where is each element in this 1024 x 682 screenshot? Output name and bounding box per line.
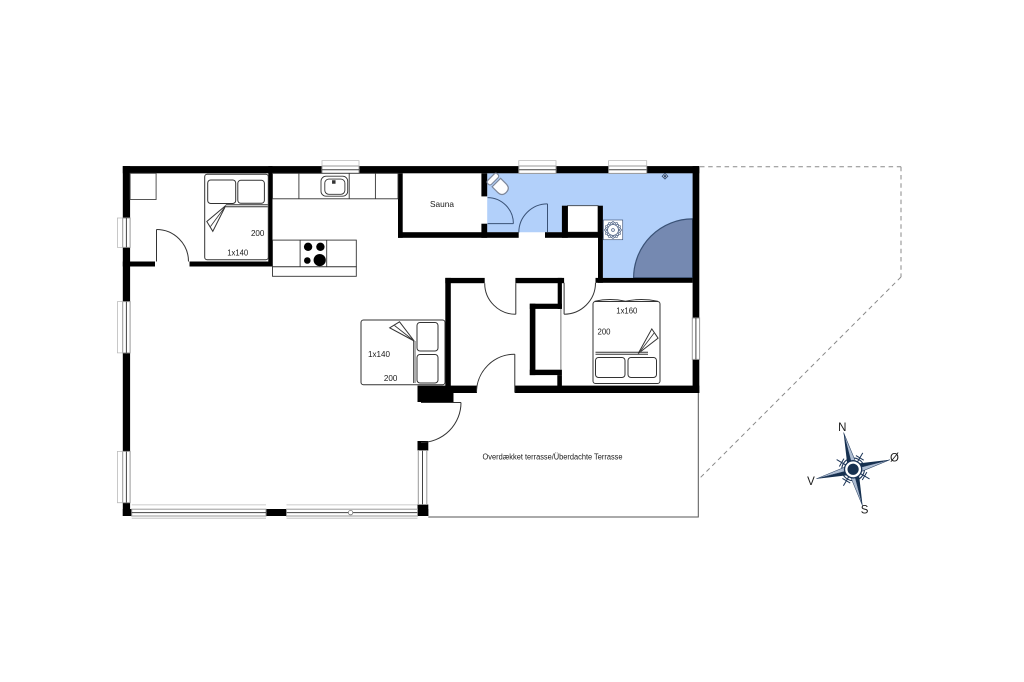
svg-text:S: S	[861, 504, 869, 516]
svg-text:1x160: 1x160	[616, 306, 637, 316]
svg-text:1x140: 1x140	[368, 349, 390, 359]
svg-text:Overdækket terrasse/Überdachte: Overdækket terrasse/Überdachte Terrasse	[483, 453, 624, 462]
svg-text:Sauna: Sauna	[430, 199, 454, 209]
svg-text:Ø: Ø	[890, 453, 899, 465]
svg-text:200: 200	[384, 373, 398, 383]
svg-text:200: 200	[251, 228, 265, 238]
svg-text:1x140: 1x140	[227, 248, 248, 258]
svg-text:N: N	[838, 422, 846, 434]
svg-text:V: V	[807, 476, 815, 488]
svg-text:200: 200	[598, 327, 611, 337]
